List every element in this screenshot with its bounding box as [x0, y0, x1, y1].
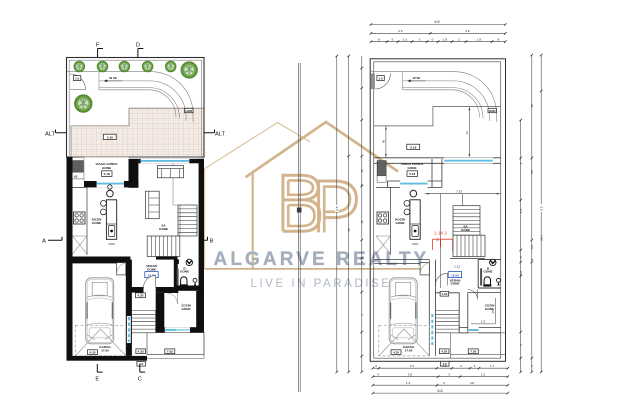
- svg-text:HOR: HOR: [489, 109, 497, 113]
- svg-text:1.8: 1.8: [477, 37, 482, 41]
- svg-text:1.10: 1.10: [441, 292, 447, 296]
- svg-text:4.35: 4.35: [441, 350, 447, 354]
- svg-text:C: C: [138, 377, 142, 383]
- svg-text:ALT: ALT: [45, 131, 56, 137]
- svg-text:85: 85: [530, 170, 534, 174]
- svg-text:6.8: 6.8: [435, 20, 440, 24]
- svg-text:7.33: 7.33: [456, 189, 462, 193]
- svg-text:2.5: 2.5: [398, 29, 403, 33]
- svg-text:ALT: ALT: [215, 131, 226, 137]
- svg-text:GONE: GONE: [407, 166, 416, 170]
- svg-text:GONE: GONE: [102, 166, 111, 170]
- svg-text:4.35: 4.35: [393, 351, 399, 355]
- svg-text:6.5: 6.5: [530, 245, 534, 250]
- svg-text:E: E: [95, 377, 99, 383]
- svg-text:1.9: 1.9: [442, 364, 447, 368]
- svg-text:1.8: 1.8: [443, 37, 448, 41]
- svg-text:B: B: [210, 239, 214, 245]
- svg-text:25: 25: [491, 310, 495, 314]
- svg-text:1.0: 1.0: [378, 77, 383, 81]
- svg-text:95: 95: [381, 140, 385, 144]
- svg-text:10.1: 10.1: [540, 235, 544, 241]
- svg-text:1.0: 1.0: [403, 37, 408, 41]
- svg-text:GONE: GONE: [395, 221, 404, 225]
- svg-text:8.5: 8.5: [540, 206, 544, 211]
- svg-text:GONE: GONE: [92, 221, 101, 225]
- svg-text:W 5E: W 5E: [413, 76, 421, 80]
- svg-text:GONE: GONE: [181, 307, 190, 311]
- svg-text:1.5: 1.5: [410, 364, 415, 368]
- svg-text:1 14 2: 1 14 2: [434, 231, 447, 236]
- svg-text:4.35: 4.35: [138, 350, 144, 354]
- svg-text:HOR: HOR: [185, 109, 193, 113]
- svg-text:17.00: 17.00: [405, 349, 413, 353]
- svg-text:45: 45: [530, 104, 534, 108]
- svg-text:16: 16: [465, 131, 469, 135]
- svg-text:4.8: 4.8: [465, 29, 470, 33]
- svg-text:1.5: 1.5: [481, 372, 486, 376]
- svg-text:D: D: [136, 43, 140, 49]
- svg-text:W 5E: W 5E: [109, 76, 117, 80]
- svg-text:5.18: 5.18: [409, 172, 415, 176]
- svg-text:45: 45: [360, 169, 364, 173]
- svg-text:A: A: [42, 239, 46, 245]
- svg-text:GONE: GONE: [450, 282, 459, 286]
- svg-text:7.05: 7.05: [167, 350, 173, 354]
- svg-text:1.12: 1.12: [454, 264, 460, 268]
- svg-text:5.18: 5.18: [104, 172, 110, 176]
- svg-text:GONE: GONE: [461, 228, 470, 232]
- svg-text:GONE: GONE: [180, 270, 189, 274]
- svg-text:1.6: 1.6: [519, 209, 523, 214]
- svg-text:1.0: 1.0: [75, 77, 80, 81]
- svg-text:F: F: [96, 43, 100, 49]
- svg-text:GONE: GONE: [159, 227, 168, 231]
- svg-text:1.9: 1.9: [481, 320, 486, 324]
- svg-text:GONE: GONE: [147, 267, 156, 271]
- svg-text:4.35: 4.35: [137, 294, 143, 298]
- svg-text:18.00: 18.00: [451, 273, 459, 277]
- svg-text:5.18: 5.18: [410, 146, 416, 150]
- svg-text:7.05: 7.05: [470, 350, 476, 354]
- svg-text:1.0: 1.0: [519, 271, 523, 276]
- svg-text:4.35: 4.35: [89, 351, 95, 355]
- svg-text:6.8: 6.8: [438, 389, 443, 393]
- svg-text:6.5: 6.5: [335, 206, 339, 211]
- svg-text:1.3: 1.3: [406, 381, 411, 385]
- svg-text:45: 45: [347, 228, 351, 232]
- svg-text:1.7: 1.7: [490, 364, 495, 368]
- svg-text:62: 62: [74, 175, 78, 179]
- svg-text:45: 45: [360, 220, 364, 224]
- svg-text:3.8: 3.8: [408, 372, 413, 376]
- svg-text:5.18: 5.18: [107, 136, 113, 140]
- svg-text:4.8: 4.8: [470, 381, 475, 385]
- svg-text:16: 16: [436, 238, 440, 242]
- svg-text:GONE: GONE: [483, 270, 492, 274]
- svg-text:17.00: 17.00: [101, 349, 109, 353]
